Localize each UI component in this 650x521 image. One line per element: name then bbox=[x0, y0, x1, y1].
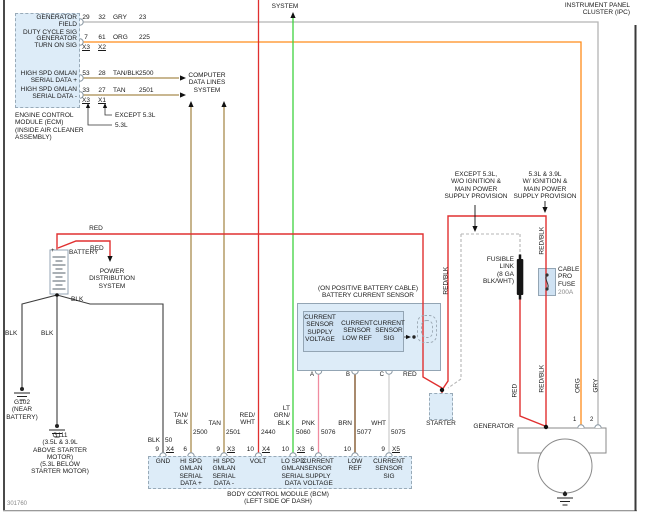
bcm-circuit: 2500 bbox=[193, 429, 207, 436]
computer-data-lines-label-top: COMPUTER DATA LINES SYSTEM bbox=[261, 0, 309, 10]
ecm-pin: 28 bbox=[96, 70, 108, 77]
red-wire-label: RED bbox=[88, 225, 104, 232]
bcm-pin: 9 bbox=[208, 446, 220, 453]
blk-wire-label: BLK bbox=[5, 330, 17, 337]
bcm-pin-name-supply: CURRENT SENSOR SUPPLY VOLTAGE bbox=[298, 458, 338, 487]
ecm-connector: X1 bbox=[96, 97, 108, 104]
sensor-terminal-a: A bbox=[306, 372, 314, 379]
frame-bottom-border bbox=[3, 510, 637, 511]
diagram-number: 301760 bbox=[7, 501, 27, 508]
ecm-wire-color: GRY bbox=[113, 14, 141, 21]
bcm-pin: 10 bbox=[242, 446, 254, 453]
ecm-signal-generator-field: GENERATOR FIELD DUTY CYCLE SIG bbox=[17, 14, 77, 36]
frame-right-border bbox=[635, 25, 637, 511]
frame-left-border bbox=[3, 0, 5, 511]
ecm-circuit: 2500 bbox=[139, 70, 159, 77]
red-blk-wire-label: RED/BLK bbox=[442, 263, 449, 299]
ecm-pin: 53 bbox=[80, 70, 92, 77]
wiring-diagram-page: INSTRUMENT PANEL CLUSTER (IPC) 301760 GE… bbox=[0, 0, 650, 521]
org-wire-label: ORG bbox=[574, 368, 581, 404]
bcm-wire-color: LT GRN/ BLK bbox=[266, 405, 290, 427]
ecm-circuit: 23 bbox=[139, 14, 159, 21]
bcm-connector: X4 bbox=[262, 446, 270, 453]
ecm-caption: ENGINE CONTROL MODULE (ECM) (INSIDE AIR … bbox=[15, 112, 87, 141]
g102-label: G102 (NEAR BATTERY) bbox=[2, 399, 42, 421]
bcm-connector: X5 bbox=[392, 446, 400, 453]
bcm-pin: 10 bbox=[339, 446, 351, 453]
ecm-signal-gmlan-plus: HIGH SPD GMLAN SERIAL DATA + bbox=[17, 70, 77, 85]
computer-data-lines-label: COMPUTER DATA LINES SYSTEM bbox=[183, 72, 231, 94]
ecm-pin: 32 bbox=[96, 14, 108, 21]
bcm-wire-color: RED/ WHT bbox=[231, 412, 255, 427]
bcm-circuit: 5077 bbox=[357, 429, 371, 436]
bcm-pin: 9 bbox=[373, 446, 385, 453]
annotation-53-39: 5.3L & 3.9L W/ IGNITION & MAIN POWER SUP… bbox=[505, 171, 585, 200]
annotation-except-53: EXCEPT 5.3L, W/O IGNITION & MAIN POWER S… bbox=[436, 171, 516, 200]
generator-symbol bbox=[518, 428, 606, 493]
bcm-wire-color: WHT bbox=[362, 420, 386, 427]
annotation-leaders bbox=[475, 201, 545, 226]
red-wire-label: RED bbox=[90, 245, 104, 252]
blk-wire-label: BLK bbox=[41, 330, 53, 337]
connector-bumps bbox=[80, 19, 601, 456]
ecm-wire-color: TAN/BLK bbox=[113, 70, 141, 77]
ecm-connector: X3 bbox=[80, 44, 92, 51]
red-wire-label: RED bbox=[511, 373, 518, 409]
ecm-signal-gmlan-minus: HIGH SPD GMLAN SERIAL DATA - bbox=[17, 86, 77, 101]
generator-terminal-2: 2 bbox=[590, 417, 593, 424]
cable-pro-fuse-rating: 200A bbox=[558, 289, 573, 296]
red-main-wire bbox=[57, 234, 442, 388]
bcm-connector: X4 bbox=[166, 446, 174, 453]
bcm-circuit: 5075 bbox=[391, 429, 405, 436]
red-blk-wire-label: RED/BLK bbox=[538, 223, 545, 259]
bcm-wire-color: TAN/ BLK bbox=[164, 412, 188, 427]
ecm-signal-generator-turn-on: GENERATOR TURN ON SIG bbox=[17, 35, 77, 50]
sensor-caption: (ON POSITIVE BATTERY CABLE) BATTERY CURR… bbox=[305, 285, 431, 300]
bcm-pin: 10 bbox=[277, 446, 289, 453]
generator-terminal-1: 1 bbox=[573, 417, 576, 424]
power-distribution-label: POWER DISTRIBUTION SYSTEM bbox=[88, 268, 136, 290]
bcm-pin: 6 bbox=[175, 446, 187, 453]
red-blk-wire-label: RED/BLK bbox=[538, 361, 545, 397]
red-blk-loop-wire bbox=[442, 216, 546, 425]
ecm-variant-except-53: EXCEPT 5.3L bbox=[115, 112, 155, 119]
g111-label: G111 (3.5L & 3.9L ABOVE STARTER MOTOR) (… bbox=[29, 432, 91, 476]
bcm-connector: X3 bbox=[227, 446, 235, 453]
ecm-connector: X3 bbox=[80, 97, 92, 104]
sensor-terminal-b: B bbox=[342, 372, 350, 379]
cable-pro-fuse-label: CABLE PRO FUSE bbox=[558, 266, 579, 288]
red-wire-label: RED bbox=[403, 371, 417, 378]
fusible-link-label: FUSIBLE LINK (8 GA BLK/WHT) bbox=[472, 256, 514, 285]
sensor-terminal-c: C bbox=[376, 372, 384, 379]
starter-label: STARTER bbox=[419, 420, 463, 427]
bcm-caption: BODY CONTROL MODULE (BCM) (LEFT SIDE OF … bbox=[203, 491, 353, 506]
battery-plus-sign: + bbox=[51, 248, 55, 255]
bcm-circuit: 2501 bbox=[226, 429, 240, 436]
ecm-wire-color: TAN bbox=[113, 87, 141, 94]
ecm-pin: 29 bbox=[80, 14, 92, 21]
generator-label: GENERATOR bbox=[464, 423, 514, 430]
ecm-circuit: 2501 bbox=[139, 87, 159, 94]
bcm-circuit: 5060 bbox=[296, 429, 310, 436]
bcm-circuit: 5076 bbox=[321, 429, 335, 436]
sensor-channel-supply: CURRENT SENSOR SUPPLY VOLTAGE bbox=[300, 314, 340, 343]
ecm-circuit: 225 bbox=[139, 34, 159, 41]
ecm-variant-53: 5.3L bbox=[115, 122, 128, 129]
ecm-pin: 61 bbox=[96, 34, 108, 41]
bcm-wire-color: TAN bbox=[197, 420, 221, 427]
bcm-pin: 6 bbox=[302, 446, 314, 453]
battery-symbol bbox=[50, 250, 68, 294]
bcm-pin-name-volt: VOLT bbox=[238, 458, 278, 465]
sensor-clamp-symbol bbox=[418, 316, 437, 343]
bcm-pin: 9 bbox=[147, 446, 159, 453]
ecm-variant-leaders bbox=[88, 107, 112, 125]
bcm-circuit: 50 bbox=[165, 437, 172, 444]
ecm-connector: X2 bbox=[96, 44, 108, 51]
blk-ground-wires bbox=[22, 295, 163, 453]
blk-wire-label: BLK bbox=[71, 296, 83, 303]
ecm-pin: 27 bbox=[96, 87, 108, 94]
generator-ground-symbol bbox=[557, 491, 573, 505]
bcm-pin-name-sensorsig: CURRENT SENSOR SIG bbox=[369, 458, 409, 480]
gry-wire-label: GRY bbox=[592, 368, 599, 404]
fusible-link-symbol bbox=[517, 255, 524, 300]
bcm-wire-color: PNK bbox=[291, 420, 315, 427]
sensor-channel-sig: CURRENT SENSOR SIG bbox=[369, 320, 409, 342]
ipc-title: INSTRUMENT PANEL CLUSTER (IPC) bbox=[505, 2, 630, 17]
bcm-circuit: 2440 bbox=[261, 429, 275, 436]
bcm-wire-color: BRN bbox=[328, 420, 352, 427]
ecm-wire-color: ORG bbox=[113, 34, 141, 41]
bcm-wire-color: BLK bbox=[136, 437, 160, 444]
ecm-pin: 33 bbox=[80, 87, 92, 94]
ecm-pin: 7 bbox=[80, 34, 92, 41]
wire-layer bbox=[0, 0, 650, 521]
